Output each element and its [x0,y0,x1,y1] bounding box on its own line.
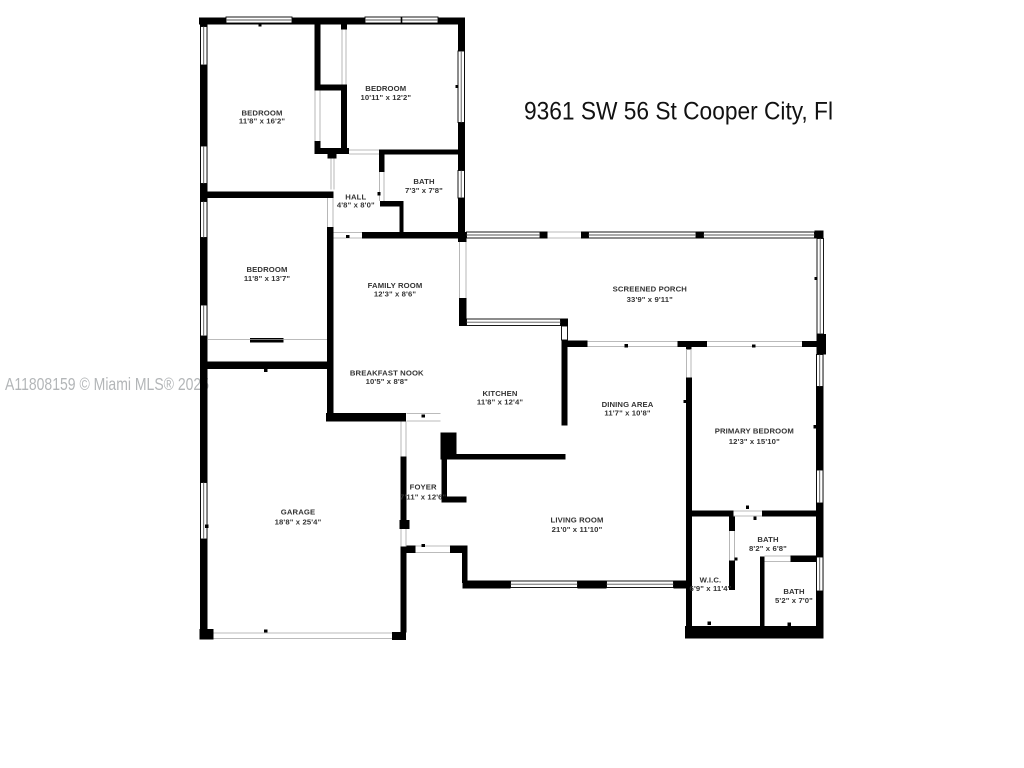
svg-text:7'11" x 12'6": 7'11" x 12'6" [400,493,447,502]
svg-text:GARAGE: GARAGE [281,508,315,517]
svg-text:4'8" x 8'0": 4'8" x 8'0" [337,201,375,210]
svg-text:21'0" x 11'10": 21'0" x 11'10" [552,525,603,534]
svg-text:7'3" x 7'8": 7'3" x 7'8" [405,186,443,195]
svg-text:33'9" x 9'11": 33'9" x 9'11" [627,295,674,304]
svg-text:12'3" x 15'10": 12'3" x 15'10" [729,437,780,446]
svg-text:11'8" x 16'2": 11'8" x 16'2" [239,117,286,126]
svg-text:SCREENED PORCH: SCREENED PORCH [613,285,688,294]
svg-text:5'2" x 7'0": 5'2" x 7'0" [775,596,813,605]
svg-text:8'2" x 6'8": 8'2" x 6'8" [749,544,787,553]
svg-text:10'5" x 8'8": 10'5" x 8'8" [366,377,409,386]
svg-text:PRIMARY BEDROOM: PRIMARY BEDROOM [715,427,794,436]
svg-text:BEDROOM: BEDROOM [247,265,288,274]
svg-text:10'11" x 12'2": 10'11" x 12'2" [360,93,411,102]
svg-text:11'7" x 10'8": 11'7" x 10'8" [604,409,651,418]
svg-text:FOYER: FOYER [410,483,437,492]
svg-text:LIVING ROOM: LIVING ROOM [551,516,604,525]
svg-text:9361 SW 56 St Cooper City, Fl: 9361 SW 56 St Cooper City, Fl [524,99,833,126]
svg-text:11'8" x 12'4": 11'8" x 12'4" [477,398,524,407]
svg-text:BATH: BATH [413,177,435,186]
svg-text:BATH: BATH [757,535,779,544]
svg-text:18'8" x 25'4": 18'8" x 25'4" [275,518,322,527]
svg-text:BATH: BATH [783,587,805,596]
svg-text:12'3" x 8'6": 12'3" x 8'6" [374,290,417,299]
svg-text:6'9" x 11'4": 6'9" x 11'4" [690,584,732,593]
svg-text:A11808159 © Miami MLS® 2025: A11808159 © Miami MLS® 2025 [5,374,209,394]
svg-text:BEDROOM: BEDROOM [365,84,406,93]
svg-text:11'8" x 13'7": 11'8" x 13'7" [244,274,291,283]
